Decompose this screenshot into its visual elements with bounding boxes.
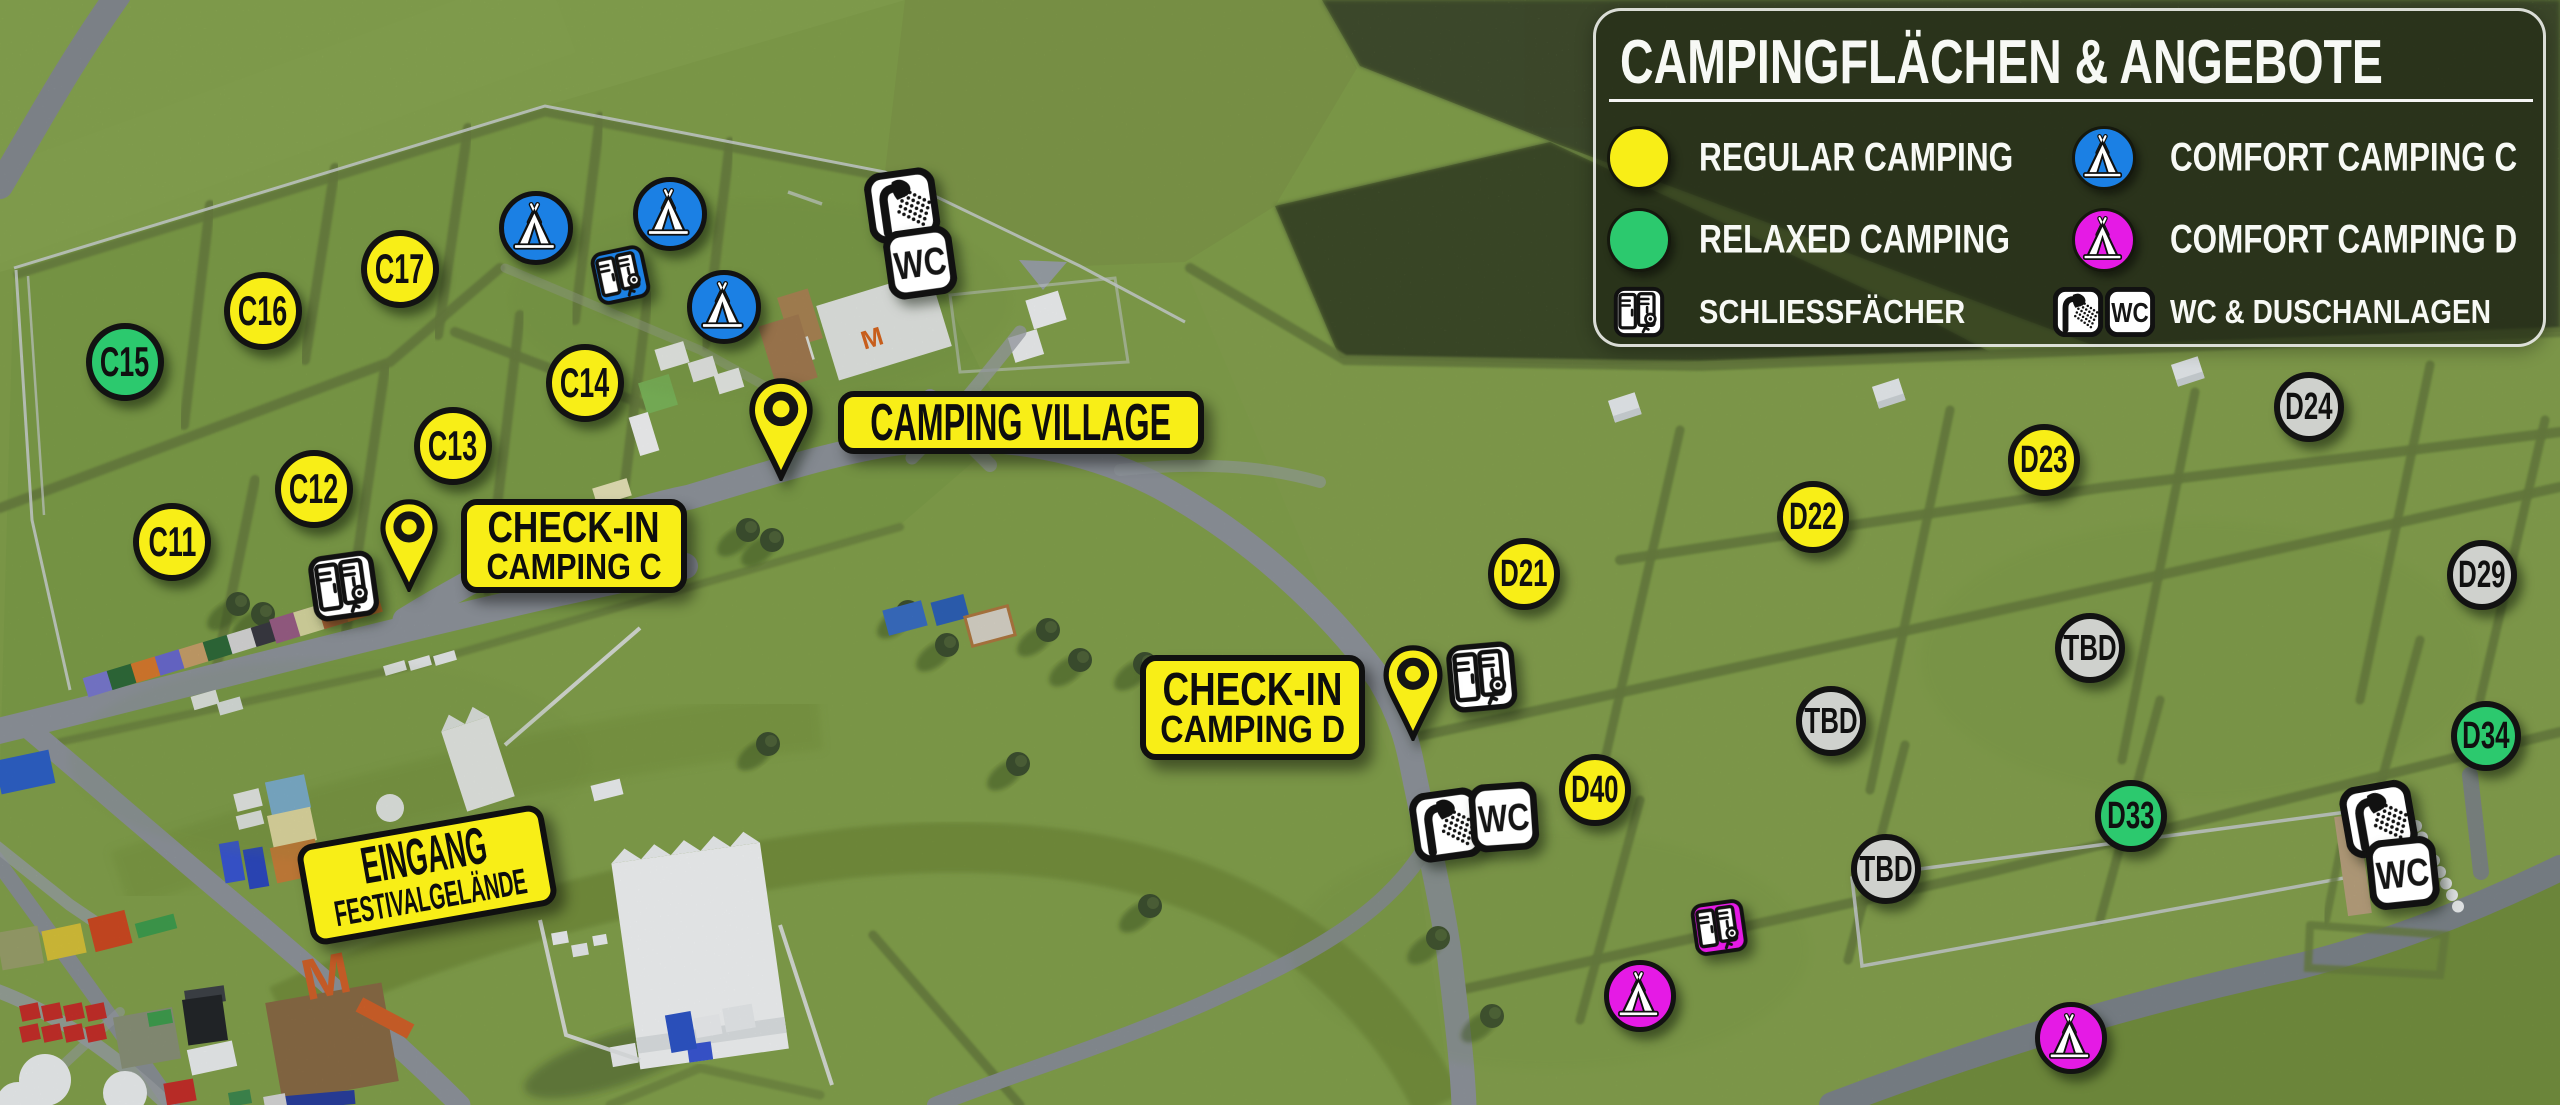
svg-text:WC: WC	[1477, 795, 1531, 841]
svg-text:WC: WC	[892, 239, 949, 289]
svg-text:WC: WC	[2111, 297, 2149, 328]
svg-text:WC: WC	[2374, 850, 2431, 899]
